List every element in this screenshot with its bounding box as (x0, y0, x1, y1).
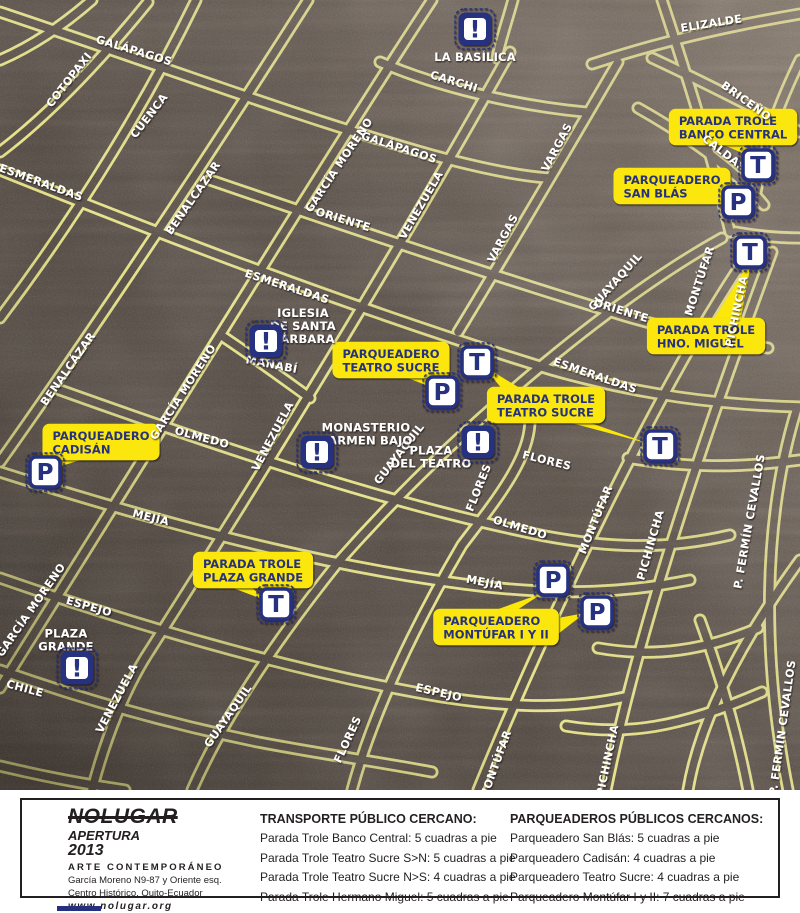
callout-parada-trole-banco-central: PARADA TROLEBANCO CENTRAL (669, 109, 797, 146)
trole-stop-icon: T (257, 585, 295, 623)
callout-text: PARQUEADERO (443, 614, 540, 628)
brand-address-1: García Moreno N9-87 y Oriente esq. (68, 876, 258, 886)
callout-text: PARADA TROLE (657, 323, 755, 337)
poi-label-la-basilica: LA BASÍLICA (434, 49, 516, 64)
exclamation-icon: ! (470, 16, 481, 44)
transport-item: Parada Trole Teatro Sucre S>N: 5 cuadras… (260, 849, 500, 869)
poi-icon-iglesia-santa-barbara: ! (246, 321, 286, 361)
poi-icon-plaza-del-teatro: ! (458, 422, 498, 462)
callout-parada-trole-hno-miguel: PARADA TROLEHNO. MIGUEL (647, 318, 765, 355)
callout-parada-trole-plaza-grande: PARADA TROLEPLAZA GRANDE (193, 552, 313, 589)
icon-letter: T (750, 153, 766, 179)
transport-item: Parada Trole Hermano Miguel: 5 cuadras a… (260, 888, 500, 908)
parking-item: Parqueadero Montúfar I y II: 7 cuadras a… (510, 888, 770, 908)
icon-letter: P (545, 568, 562, 594)
icon-letter: T (469, 350, 485, 376)
exclamation-icon: ! (261, 328, 272, 356)
map-flyer: PARADA TROLEBANCO CENTRALPARQUEADEROSAN … (0, 0, 800, 911)
brand-tagline: ARTE CONTEMPORÁNEO (68, 863, 258, 873)
exclamation-icon: ! (473, 429, 484, 457)
callout-text: PARQUEADERO (342, 347, 439, 361)
callout-text: PLAZA GRANDE (203, 570, 303, 584)
transport-heading: TRANSPORTE PÚBLICO CERCANO: (260, 812, 500, 826)
poi-label-plaza-grande: PLAZAGRANDE (38, 627, 93, 654)
transport-column: TRANSPORTE PÚBLICO CERCANO: Parada Trole… (260, 812, 500, 907)
icon-letter: P (589, 600, 606, 626)
parking-icon: P (719, 183, 757, 221)
exclamation-icon: ! (72, 655, 83, 683)
callout-text: PARQUEADERO (52, 429, 149, 443)
street-map: PARADA TROLEBANCO CENTRALPARQUEADEROSAN … (0, 0, 800, 790)
callout-text: PARQUEADERO (623, 173, 720, 187)
callout-parqueadero-montufar: PARQUEADEROMONTÚFAR I Y II (433, 609, 558, 646)
callout-text: CADISÁN (52, 441, 110, 456)
callout-text: PARADA TROLE (203, 557, 301, 571)
parking-column: PARQUEADEROS PÚBLICOS CERCANOS: Parquead… (510, 812, 770, 907)
callout-text: MONTÚFAR I Y II (443, 626, 549, 641)
brand-year: 2013 (68, 843, 258, 860)
parking-icon: P (423, 373, 461, 411)
brand-address-2: Centro Histórico. Quito-Ecuador (68, 889, 258, 899)
poi-icon-monasterio-carmen-bajo: ! (297, 432, 337, 472)
icon-letter: T (268, 592, 284, 618)
parking-item: Parqueadero Cadisán: 4 cuadras a pie (510, 849, 770, 869)
icon-letter: T (742, 240, 758, 266)
trole-stop-icon: T (739, 146, 777, 184)
footer: NOLUGAR APERTURA 2013 ARTE CONTEMPORÁNEO… (0, 790, 800, 911)
callout-text: PARADA TROLE (497, 392, 595, 406)
parking-icon: P (534, 561, 572, 599)
icon-letter: T (652, 434, 668, 460)
exclamation-icon: ! (312, 439, 323, 467)
footer-border-box: NOLUGAR APERTURA 2013 ARTE CONTEMPORÁNEO… (20, 798, 780, 898)
parking-icon: P (578, 593, 616, 631)
icon-letter: P (730, 190, 747, 216)
callout-text: TEATRO SUCRE (342, 360, 439, 374)
transport-item: Parada Trole Teatro Sucre N>S: 4 cuadras… (260, 868, 500, 888)
map-canvas: PARADA TROLEBANCO CENTRALPARQUEADEROSAN … (0, 0, 800, 790)
trole-stop-icon: T (731, 233, 769, 271)
icon-letter: P (434, 380, 451, 406)
icon-letter: P (37, 460, 54, 486)
poi-icon-la-basilica: ! (455, 9, 495, 49)
parking-icon: P (26, 453, 64, 491)
brand-logo: NOLUGAR (68, 806, 258, 828)
trole-stop-icon: T (458, 343, 496, 381)
poi-icon-plaza-grande: ! (57, 648, 97, 688)
callout-text: TEATRO SUCRE (497, 405, 594, 419)
callout-text: SAN BLÁS (623, 185, 687, 200)
parking-heading: PARQUEADEROS PÚBLICOS CERCANOS: (510, 812, 770, 826)
parking-item: Parqueadero San Blás: 5 cuadras a pie (510, 829, 770, 849)
transport-item: Parada Trole Banco Central: 5 cuadras a … (260, 829, 500, 849)
callout-parqueadero-san-blas: PARQUEADEROSAN BLÁS (613, 168, 730, 205)
callout-parada-trole-teatro-sucre: PARADA TROLETEATRO SUCRE (487, 387, 605, 424)
callout-text: BANCO CENTRAL (679, 127, 788, 141)
parking-item: Parqueadero Teatro Sucre: 4 cuadras a pi… (510, 868, 770, 888)
footer-accent-bar (57, 906, 101, 911)
brand-apertura: APERTURA (68, 829, 258, 843)
trole-stop-icon: T (641, 427, 679, 465)
brand-block: NOLUGAR APERTURA 2013 ARTE CONTEMPORÁNEO… (68, 806, 258, 913)
